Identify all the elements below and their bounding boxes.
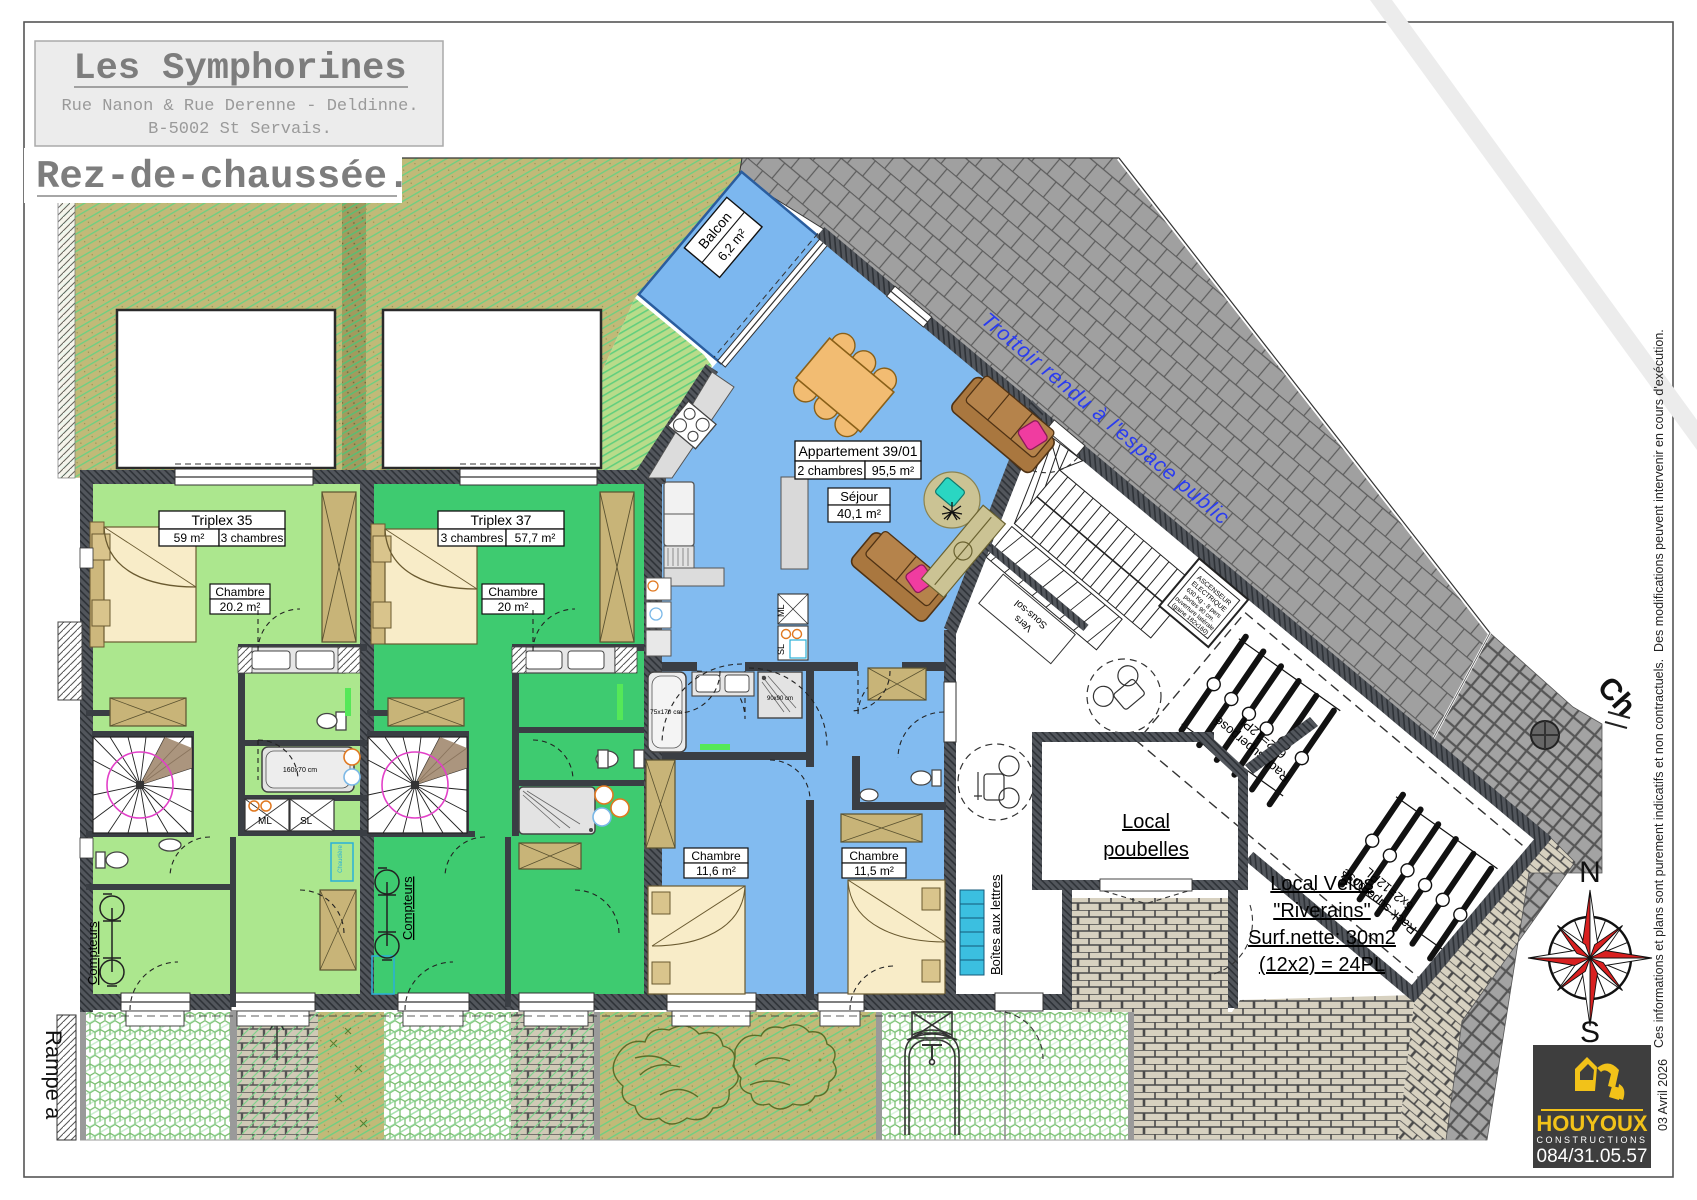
svg-text:Rue Nanon & Rue Derenne - Deld: Rue Nanon & Rue Derenne - Deldinne. [61,97,418,116]
svg-text:59 m²: 59 m² [174,531,205,545]
svg-text:Compteurs: Compteurs [400,876,415,940]
svg-text:11,6 m²: 11,6 m² [696,864,736,878]
svg-text:(12x2) = 24PL: (12x2) = 24PL [1259,954,1385,976]
svg-text:"Riverains": "Riverains" [1273,900,1371,922]
svg-text:Boîtes aux lettres: Boîtes aux lettres [988,874,1003,975]
svg-text:95,5 m²: 95,5 m² [872,464,914,478]
svg-text:Chaudière: Chaudière [338,844,344,872]
svg-text:SL: SL [776,644,786,655]
svg-text:B-5002 St Servais.: B-5002 St Servais. [148,120,332,139]
svg-text:Appartement 39/01: Appartement 39/01 [798,443,917,459]
svg-text:Triplex 35: Triplex 35 [192,512,253,528]
svg-text:Séjour: Séjour [840,489,878,504]
svg-text:Chambre: Chambre [849,849,899,863]
svg-text:S: S [1580,1016,1600,1049]
svg-text:084/31.05.57: 084/31.05.57 [1537,1146,1648,1167]
svg-text:3 chambres: 3 chambres [441,531,504,545]
svg-text:Local Vélos: Local Vélos [1270,873,1373,895]
svg-text:75x170 cm: 75x170 cm [650,709,682,716]
svg-text:20.2 m²: 20.2 m² [220,600,261,614]
svg-text:Chambre: Chambre [691,849,741,863]
svg-text:Chambre: Chambre [215,585,265,599]
svg-text:Rampe a: Rampe a [41,1030,66,1120]
svg-text:160x70 cm: 160x70 cm [283,767,317,774]
svg-text:40,1 m²: 40,1 m² [837,506,882,521]
svg-text:HOUYOUX: HOUYOUX [1536,1111,1648,1136]
svg-text:poubelles: poubelles [1103,839,1189,861]
svg-text:Local: Local [1122,811,1170,833]
svg-text:Triplex 37: Triplex 37 [471,512,532,528]
svg-text:N: N [1579,856,1601,889]
svg-text:20 m²: 20 m² [498,600,529,614]
svg-text:03 Avril 2026: 03 Avril 2026 [1656,1059,1670,1131]
svg-text:Les Symphorines: Les Symphorines [73,48,406,90]
svg-text:57,7 m²: 57,7 m² [515,531,556,545]
svg-text:ML: ML [776,604,786,617]
svg-text:3 chambres: 3 chambres [221,531,284,545]
svg-text:2 chambres: 2 chambres [797,464,862,478]
svg-text:Chambre: Chambre [488,585,538,599]
svg-text:Surf.nette: 30m2: Surf.nette: 30m2 [1248,927,1396,949]
svg-text:90x90 cm: 90x90 cm [767,696,793,702]
svg-text:SL: SL [300,816,313,827]
svg-text:ML: ML [258,816,272,827]
svg-text:11,5 m²: 11,5 m² [854,864,894,878]
svg-text:Rez-de-chaussée.: Rez-de-chaussée. [36,155,410,199]
svg-text:Ces informations et plans sont: Ces informations et plans sont purement … [1652,329,1666,1048]
svg-text:CONSTRUCTIONS: CONSTRUCTIONS [1537,1135,1648,1145]
svg-text:Compteurs: Compteurs [85,921,100,985]
